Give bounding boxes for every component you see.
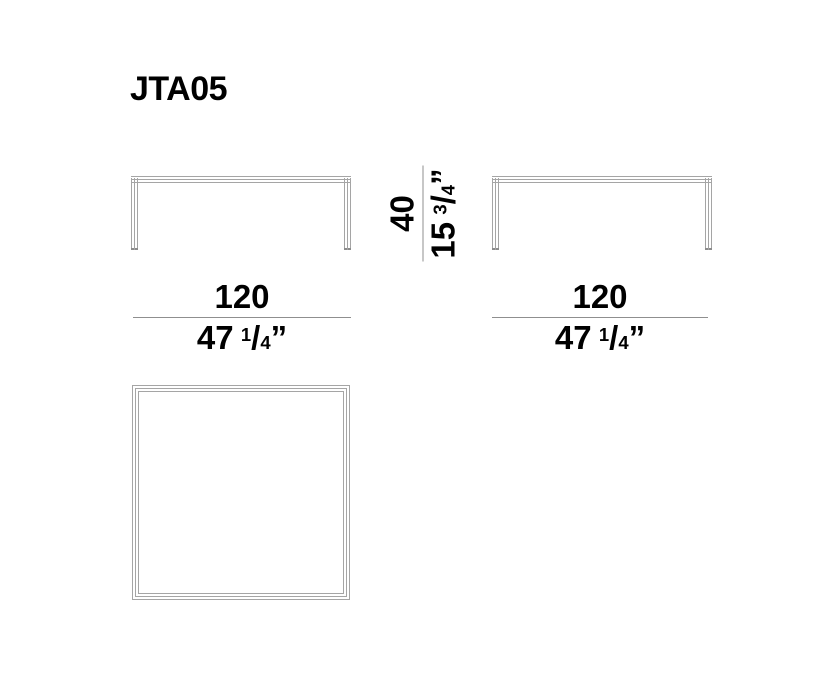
height-dimension: 40 153/4” bbox=[386, 166, 467, 262]
top-view-middle-outline bbox=[135, 388, 347, 597]
spec-sheet-page: JTA05 40 153/4” 120 471/4” 120 471/4 bbox=[0, 0, 840, 679]
height-inch-frac-numerator: 3 bbox=[430, 204, 451, 214]
side-foot-left bbox=[492, 248, 499, 250]
side-width-cm-label: 120 bbox=[492, 280, 708, 314]
side-width-inch-frac-denominator: 4 bbox=[618, 332, 628, 353]
side-leg-right bbox=[705, 178, 712, 250]
product-code-title: JTA05 bbox=[130, 70, 227, 109]
tabletop-edge-side bbox=[492, 176, 712, 183]
fraction-slash: / bbox=[609, 319, 618, 356]
front-width-inches-label: 471/4” bbox=[133, 320, 351, 361]
front-width-inch-whole: 47 bbox=[197, 319, 234, 356]
front-width-inch-frac-denominator: 4 bbox=[260, 332, 270, 353]
front-width-inch-mark: ” bbox=[271, 319, 288, 356]
front-foot-left bbox=[131, 248, 138, 250]
height-dimension-rule bbox=[423, 166, 424, 262]
side-elevation-drawing bbox=[492, 176, 712, 250]
front-leg-right bbox=[344, 178, 351, 250]
tabletop-edge-front bbox=[131, 176, 351, 183]
side-width-dimension-rule bbox=[492, 317, 708, 318]
height-inch-mark: ” bbox=[425, 168, 462, 185]
height-cm-label: 40 bbox=[386, 166, 420, 262]
side-foot-right bbox=[705, 248, 712, 250]
side-leg-left bbox=[492, 178, 499, 250]
side-width-inch-mark: ” bbox=[629, 319, 646, 356]
side-width-dimension: 120 471/4” bbox=[492, 280, 708, 361]
top-view-inner-outline bbox=[138, 391, 344, 594]
height-inches-label: 153/4” bbox=[426, 166, 467, 262]
front-width-dimension-rule bbox=[133, 317, 351, 318]
side-width-inches-label: 471/4” bbox=[492, 320, 708, 361]
fraction-slash: / bbox=[425, 195, 462, 204]
height-inch-frac-denominator: 4 bbox=[438, 185, 459, 195]
front-width-dimension: 120 471/4” bbox=[133, 280, 351, 361]
front-foot-right bbox=[344, 248, 351, 250]
front-width-inch-frac-numerator: 1 bbox=[241, 324, 251, 345]
fraction-slash: / bbox=[251, 319, 260, 356]
top-view-drawing bbox=[132, 385, 350, 600]
height-inch-whole: 15 bbox=[425, 222, 462, 259]
front-width-cm-label: 120 bbox=[133, 280, 351, 314]
front-elevation-drawing bbox=[131, 176, 351, 250]
side-width-inch-frac-numerator: 1 bbox=[599, 324, 609, 345]
side-width-inch-whole: 47 bbox=[555, 319, 592, 356]
front-leg-left bbox=[131, 178, 138, 250]
